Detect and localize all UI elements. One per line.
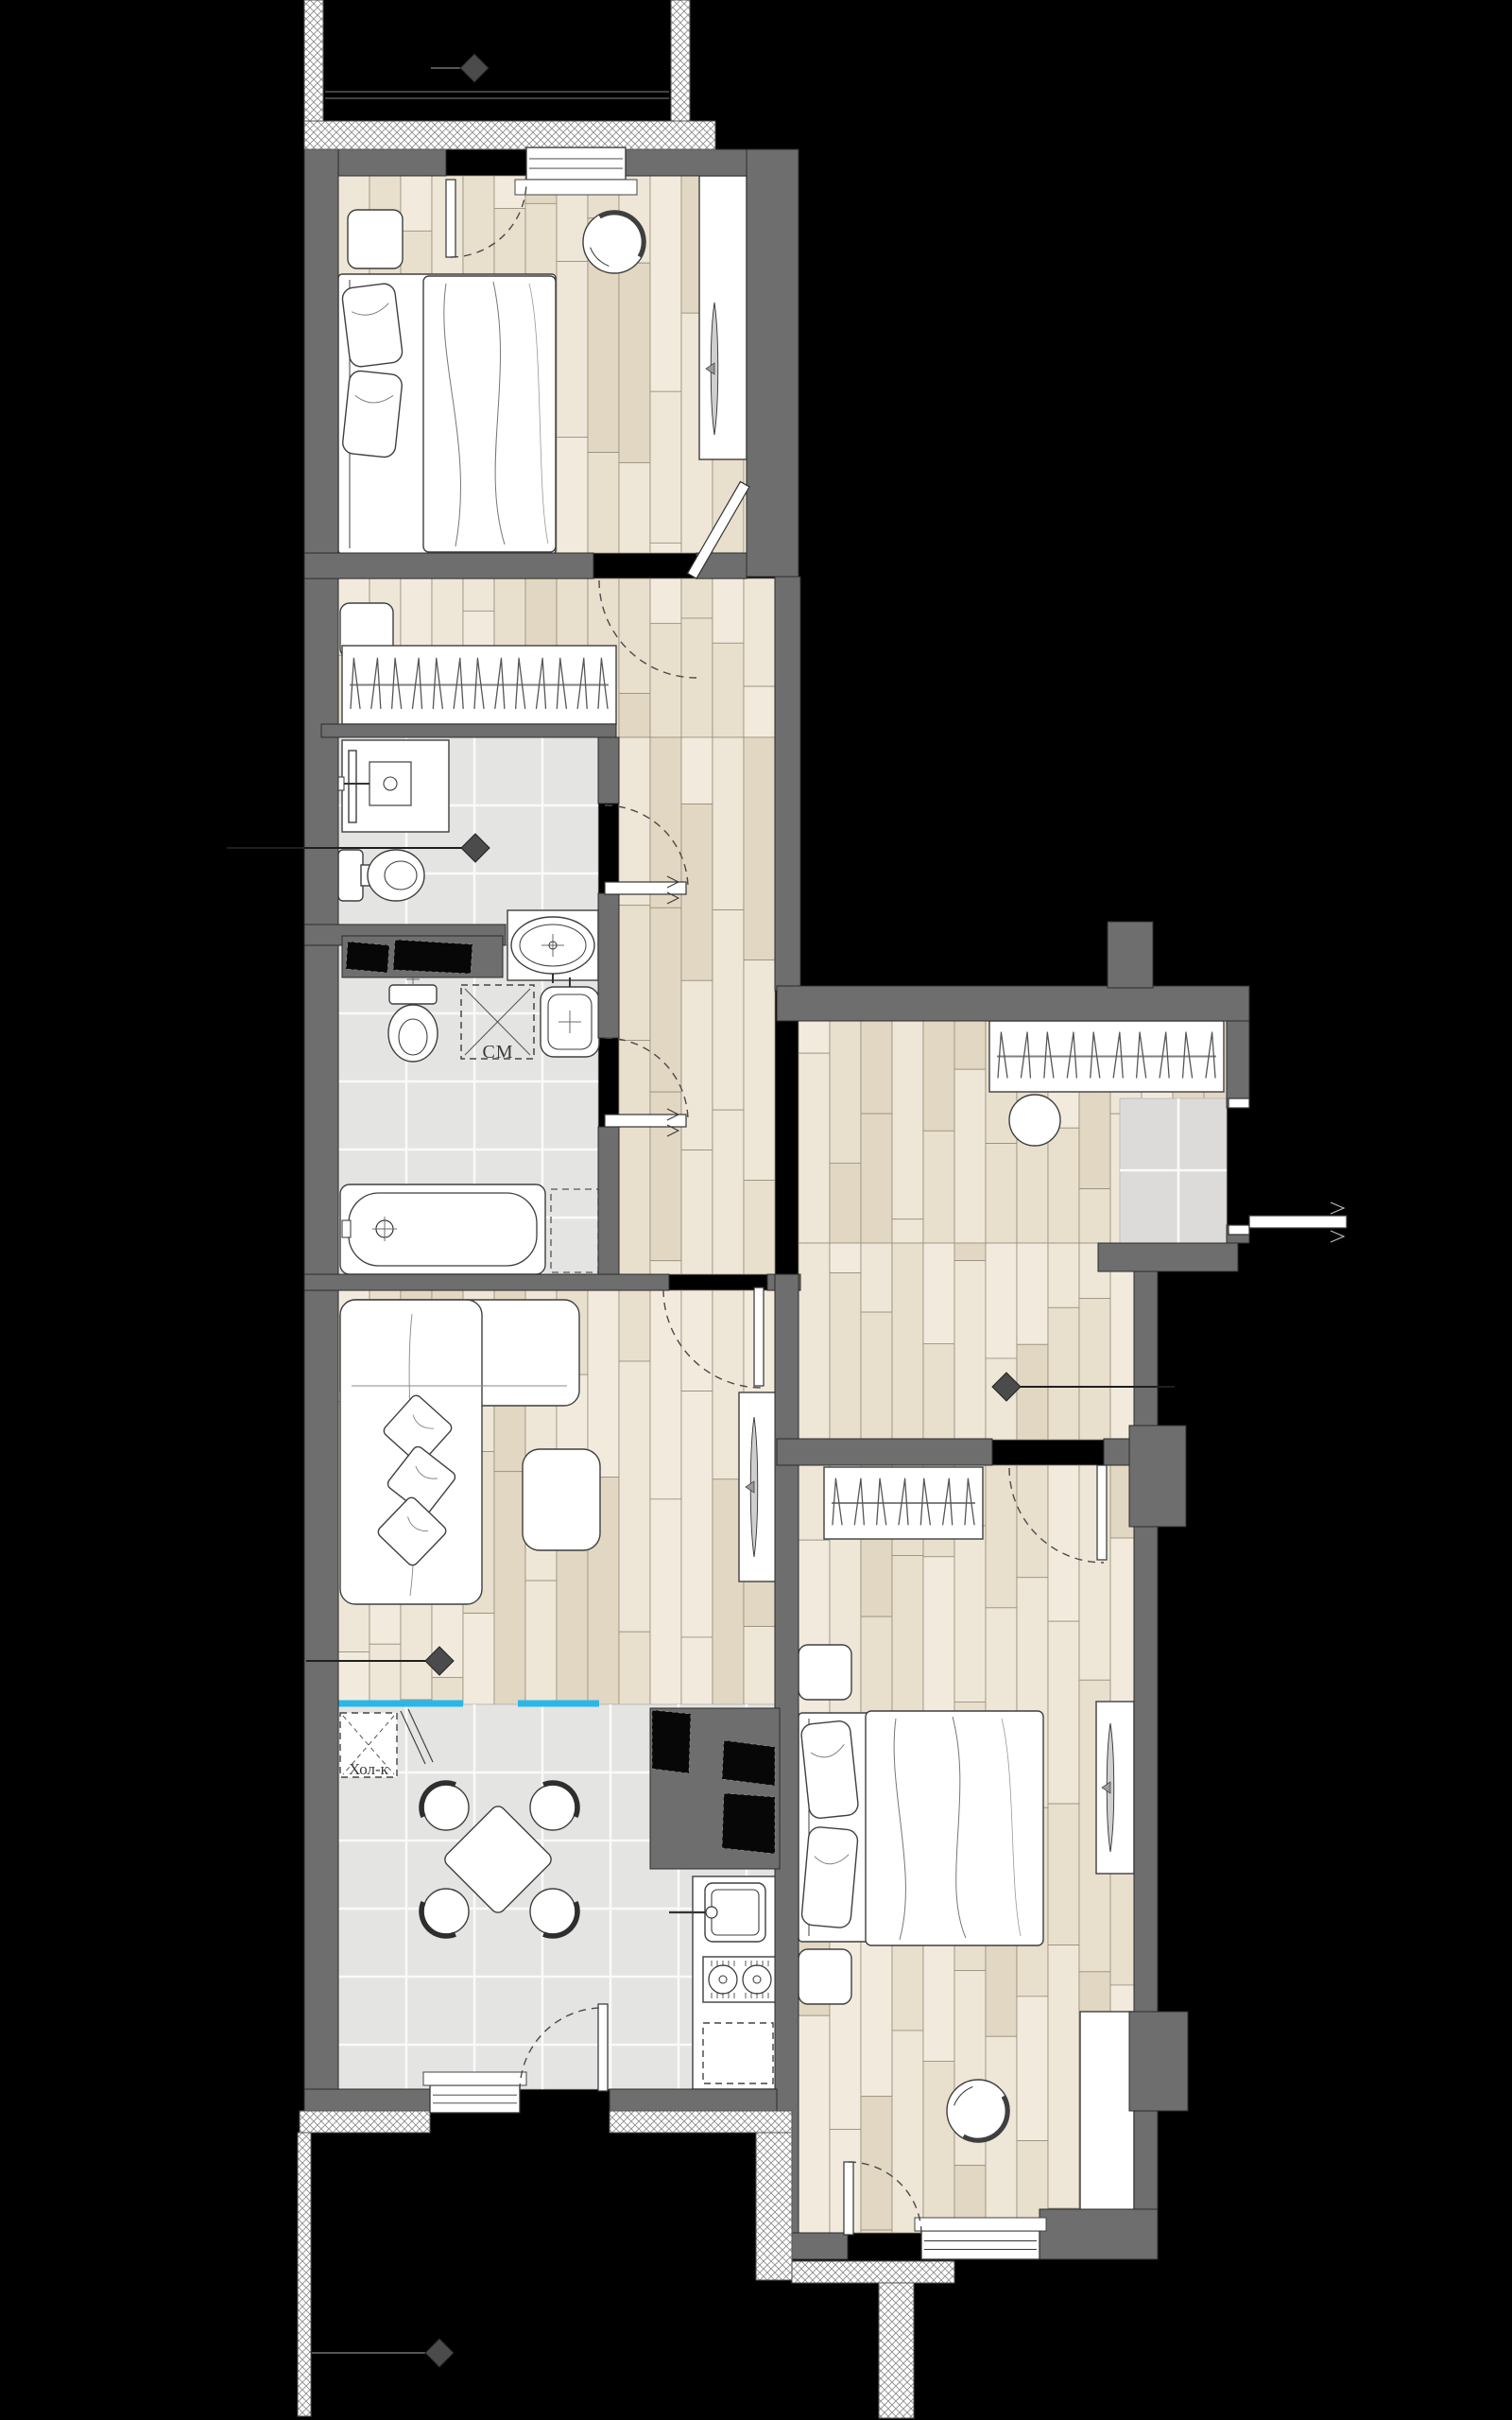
window-sill [423,2072,526,2085]
wood-plank [923,1021,954,1131]
wood-plank [1017,1344,1048,1440]
wood-plank [557,438,588,553]
wood-plank [650,176,681,391]
wood-plank [619,906,650,1041]
entry-hall-parquet [799,1243,1134,1440]
wall [1039,2209,1158,2259]
wood-plank [1017,1996,1048,2141]
wood-plank [619,463,650,553]
wood-plank [681,618,713,737]
wood-plank [744,960,775,1181]
wall [1108,922,1153,988]
pillow-shape [801,1826,859,1928]
wall [777,986,1249,1021]
wood-plank [713,737,744,910]
wood-plank [650,1261,681,1274]
wood-plank [650,579,681,623]
wood-plank [892,2031,923,2233]
black-panel [722,1740,775,1786]
coffee-table [523,1449,600,1550]
wood-plank [713,1110,744,1274]
wood-plank [1048,1465,1079,1621]
bedroom-1-window [526,147,626,180]
wall [598,1127,619,1274]
wall [610,2089,777,2111]
wood-plank [1079,1189,1110,1243]
tv-console [699,176,747,459]
kitchen-faucet [706,1907,717,1918]
wood-plank [619,1361,650,1632]
corridor-parquet [619,737,775,1274]
wood-plank [713,643,744,737]
wood-plank [1017,1243,1048,1344]
wood-plank [923,1343,954,1440]
wood-plank [744,1181,775,1274]
wood-plank [681,737,713,804]
nightstand [348,210,403,268]
nightstand [799,1645,851,1700]
balcony-parapet-hatched [298,2133,311,2416]
pillow-shape [342,370,404,458]
wood-plank [1048,1243,1079,1307]
floor-plan-page: СМ Хол-к [0,0,1512,2420]
pillow [801,1826,859,1928]
toilet-tank [338,850,363,901]
wood-plank [830,1021,861,1163]
wall [321,724,616,737]
wood-plank [861,2097,892,2230]
wood-plank [681,1290,713,1391]
pillow [341,283,404,368]
wall [304,553,593,579]
wood-plank [861,1114,892,1243]
wood-plank [744,579,775,686]
wood-plank [861,1930,892,2096]
balcony-parapet-hatched [610,2111,792,2133]
wood-plank [525,1581,557,1704]
bedroom-2-console [1080,2012,1134,2210]
washing-machine-label: СМ [482,1042,513,1063]
toilet-2-bowl [388,1005,438,1062]
balcony-parapet-hatched [304,121,715,149]
wood-plank [1048,1804,1079,1945]
corridor-closet [342,646,616,724]
wood-plank [463,1614,494,1704]
wood-plank [799,1243,830,1440]
entry-door-jamb [1228,1225,1249,1235]
wood-plank [892,1021,923,1219]
wood-plank [986,1358,1017,1440]
wood-plank [954,1069,986,1243]
wood-plank [650,543,681,553]
wall [598,893,619,1038]
wall [777,1439,992,1465]
wood-plank [681,1150,713,1274]
kitchen-balcony-door-leaf [598,2004,608,2091]
wood-plank [954,1526,986,1702]
wood-plank [744,737,775,960]
wood-plank [861,1312,892,1440]
living-room-door-leaf [754,1288,764,1386]
bedroom-2-door-leaf [1097,1465,1107,1560]
stove [703,1957,777,2002]
wood-plank [799,1021,830,1053]
bedroom-2-window [921,2231,1039,2259]
wood-plank [986,1144,1017,1243]
wall [626,149,747,176]
balcony-parapet-hatched [300,2111,430,2133]
pillow [342,370,404,458]
pillow-shape [800,1720,859,1820]
black-panel [722,1793,775,1854]
entry-door-leaf [1249,1216,1347,1228]
wood-plank [681,1391,713,1637]
wood-plank [338,1651,369,1704]
wood-plank [713,910,744,1111]
wall [304,1274,669,1290]
wood-plank [588,453,619,553]
entry-door-jamb [1228,1098,1249,1108]
wood-plank [619,263,650,462]
floor-plan-svg: СМ Хол-к [0,0,1512,2420]
wood-plank [830,1243,861,1273]
wood-plank [744,686,775,737]
fridge-label: Хол-к [349,1760,389,1778]
wall [775,577,800,991]
wood-plank [861,1021,892,1114]
balcony-door-leaf [446,180,455,257]
bathtub-mixer [342,1220,351,1237]
wood-plank [954,1021,986,1069]
toilet-2-tank [389,985,437,1004]
wood-plank [923,1131,954,1243]
bedroom-2-wardrobe [824,1467,983,1539]
wood-plank [986,1243,1017,1358]
wood-plank [619,1041,650,1274]
wood-plank [619,693,650,737]
wood-plank [650,1499,681,1704]
wood-plank [923,1243,954,1343]
window-sill [515,180,637,195]
black-mirror [346,942,389,973]
wood-plank [557,262,588,438]
balcony-parapet-hatched [671,0,690,121]
wood-plank [650,1290,681,1499]
wood-plank [799,2015,830,2233]
wood-plank [954,1243,986,1261]
bed-1-blanket [423,276,556,552]
wood-plank [1048,1945,1079,2209]
wall [598,737,619,804]
toilet-bowl [368,850,424,901]
wall [1227,1021,1249,1108]
bedroom-2-balcony-door-leaf [844,2162,853,2235]
wood-plank [681,1637,713,1704]
wood-plank [401,176,432,231]
wood-plank [954,1261,986,1440]
entry-coat-rack [989,1021,1224,1092]
wood-plank [619,1290,650,1361]
wall [1098,1243,1238,1271]
wood-plank [619,737,650,906]
kitchen-window [430,2085,520,2113]
wood-plank [588,1290,619,1478]
wood-plank [1048,1128,1079,1243]
wood-plank [799,1053,830,1243]
balcony-parapet-hatched [756,2133,792,2280]
pillow-shape [341,283,404,368]
wood-plank [650,623,681,737]
wood-plank [830,1273,861,1440]
wood-plank [1079,1298,1110,1440]
wall [1129,2012,1188,2111]
black-mirror [393,940,472,974]
balcony-parapet-hatched [792,2261,954,2283]
balcony-parapet-hatched [879,2283,914,2418]
nightstand [799,1949,851,2004]
wood-plank [619,1632,650,1704]
wood-plank [923,2061,954,2233]
pillow [800,1720,859,1820]
black-panel [652,1710,691,1773]
entry-tiles [1120,1098,1227,1243]
shower-cabin [342,740,449,832]
wood-plank [1110,1243,1134,1440]
wood-plank [713,579,744,643]
wood-plank [619,579,650,693]
wood-plank [1048,1307,1079,1440]
wood-plank [892,1219,923,1243]
wood-plank [744,1627,775,1704]
wall [304,149,338,2110]
wood-plank [861,2230,892,2233]
wood-plank [369,1644,401,1704]
wall [747,149,799,577]
wood-plank [830,1163,861,1243]
wall [1129,1426,1186,1527]
wood-plank [650,391,681,543]
wood-plank [1017,1465,1048,1578]
wood-plank [557,1547,588,1704]
wood-plank [892,1243,923,1440]
shower-glass-handle [349,751,356,822]
wall [304,2089,430,2111]
wood-plank [494,1472,525,1704]
wood-plank [986,1465,1017,1608]
entry-pouf [1009,1095,1060,1146]
balcony-parapet-hatched [304,0,323,121]
wood-plank [861,1243,892,1312]
wood-plank [1048,1621,1079,1804]
wood-plank [681,579,713,618]
wood-plank [463,579,494,611]
window-sill [915,2218,1046,2231]
bathtub [340,1184,545,1274]
